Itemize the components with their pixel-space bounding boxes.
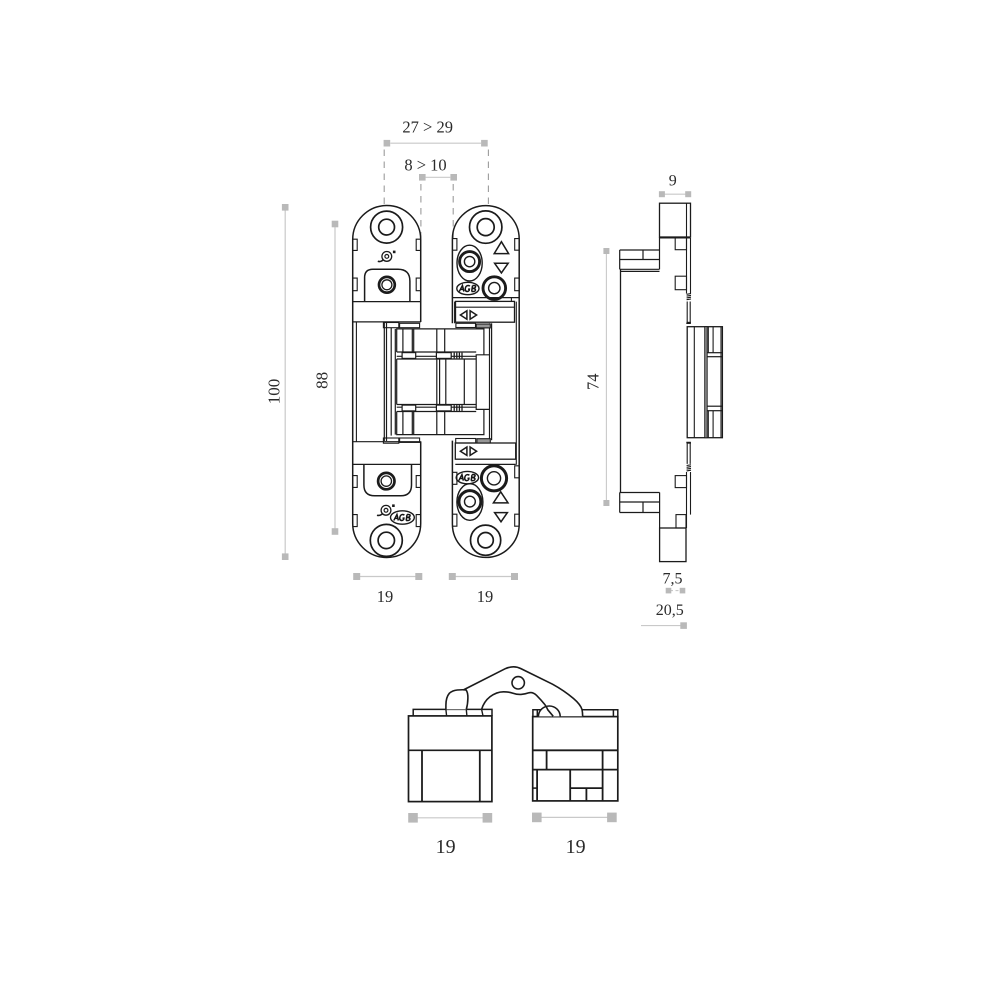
- svg-text:19: 19: [436, 836, 456, 858]
- svg-text:20,5: 20,5: [656, 602, 684, 619]
- svg-text:9: 9: [669, 173, 677, 190]
- svg-text:7,5: 7,5: [663, 571, 683, 588]
- svg-text:8 > 10: 8 > 10: [404, 156, 446, 175]
- svg-text:100: 100: [265, 379, 284, 405]
- svg-text:19: 19: [566, 836, 586, 858]
- svg-text:19: 19: [377, 587, 394, 606]
- svg-text:88: 88: [313, 372, 332, 389]
- svg-text:74: 74: [584, 373, 603, 390]
- svg-text:27 > 29: 27 > 29: [402, 118, 453, 137]
- svg-text:19: 19: [477, 587, 494, 606]
